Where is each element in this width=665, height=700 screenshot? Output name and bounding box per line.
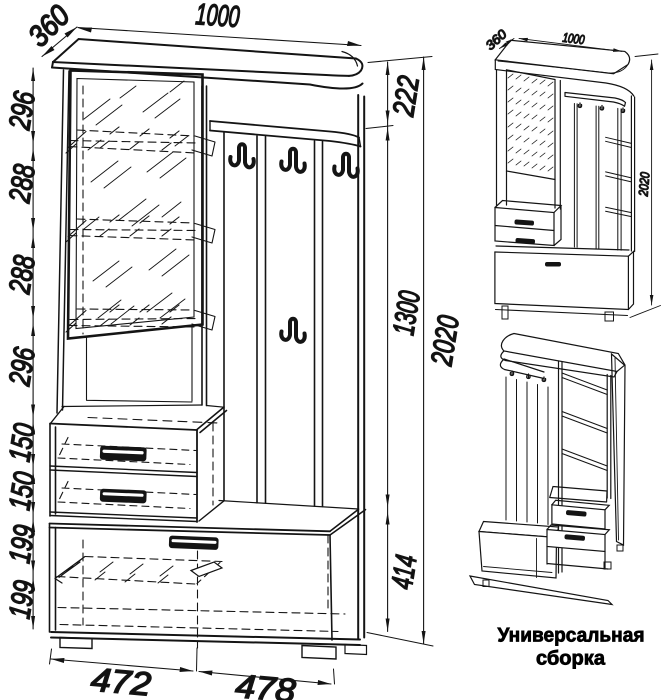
svg-text:2020: 2020 [635,171,652,198]
svg-text:288: 288 [3,253,42,297]
svg-text:Универсальная: Универсальная [498,625,645,647]
svg-text:296: 296 [3,89,42,133]
svg-text:150: 150 [3,469,42,512]
svg-text:478: 478 [234,667,298,700]
svg-text:1300: 1300 [387,289,427,338]
svg-text:296: 296 [3,345,42,389]
svg-text:сборка: сборка [536,648,606,670]
svg-text:1000: 1000 [195,0,241,34]
svg-text:414: 414 [386,553,424,592]
svg-text:222: 222 [387,73,426,119]
svg-text:150: 150 [3,421,42,464]
svg-text:1000: 1000 [562,30,586,48]
svg-text:199: 199 [3,522,42,565]
svg-text:288: 288 [3,162,42,206]
svg-text:199: 199 [3,578,42,621]
svg-text:472: 472 [90,660,153,700]
